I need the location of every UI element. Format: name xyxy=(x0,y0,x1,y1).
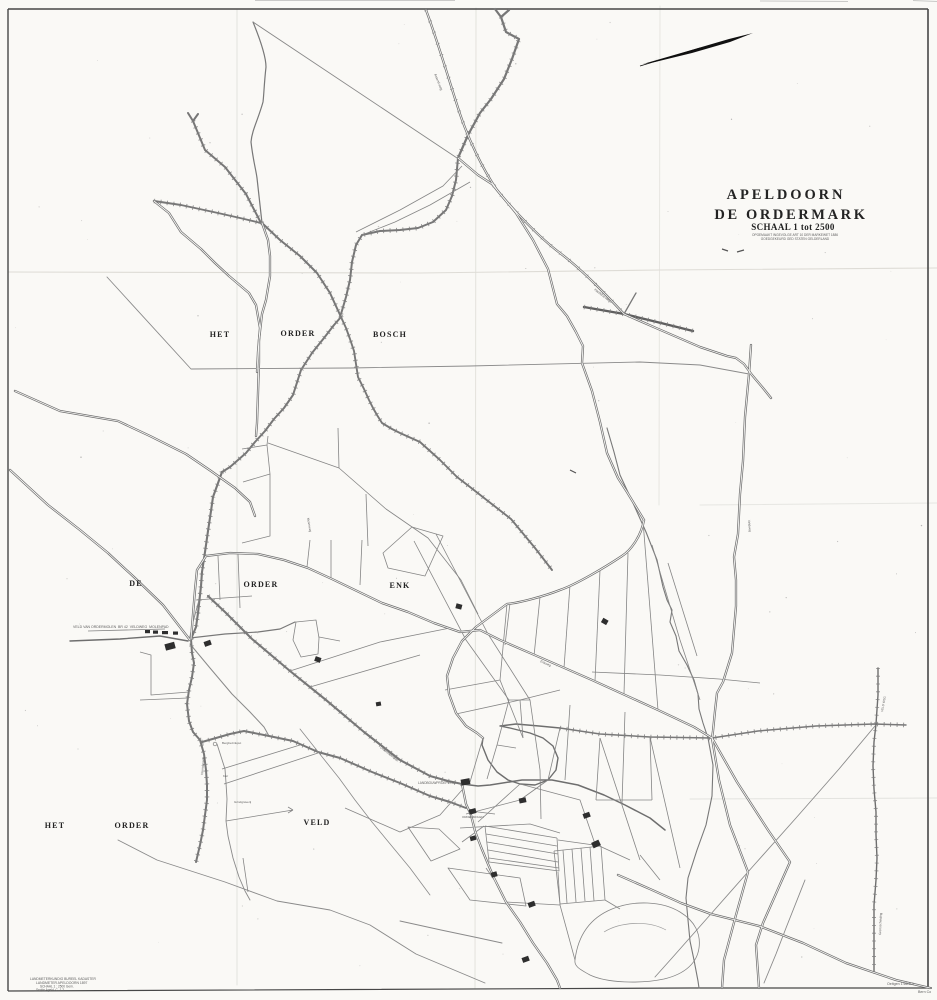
svg-text:Bern Co: Bern Co xyxy=(918,990,931,994)
svg-text:HET: HET xyxy=(210,330,231,339)
svg-text:ORDERMOLEN: ORDERMOLEN xyxy=(462,815,484,819)
svg-text:Oeltgen 1:66-9-1: Oeltgen 1:66-9-1 xyxy=(887,982,914,986)
svg-text:SCHAAL 1 tot 2500: SCHAAL 1 tot 2500 xyxy=(751,222,835,232)
svg-text:ORDER: ORDER xyxy=(115,821,150,830)
svg-text:APELDOORN: APELDOORN xyxy=(727,187,846,203)
svg-text:Grindgraverij: Grindgraverij xyxy=(234,800,252,804)
svg-text:Sectie Apeld. C. 1 2: Sectie Apeld. C. 1 2 xyxy=(36,988,64,992)
svg-text:Kwr: Kwr xyxy=(223,774,228,778)
svg-text:VELD: VELD xyxy=(303,818,330,827)
svg-text:GOEDGEKEURD GED STATEN GELDERL: GOEDGEKEURD GED STATEN GELDERLAND xyxy=(761,237,830,241)
svg-text:HET: HET xyxy=(45,821,66,830)
svg-text:Bergbezinkput: Bergbezinkput xyxy=(222,741,241,745)
svg-text:Grensscheiding: Grensscheiding xyxy=(878,913,883,936)
svg-text:DE ORDERMARK: DE ORDERMARK xyxy=(714,207,867,223)
svg-text:VELD VAN ORDERMOLEN BR 42 VE: VELD VAN ORDERMOLEN BR 42 VELDWEG MOLENP… xyxy=(73,625,169,629)
svg-text:DE: DE xyxy=(129,579,143,588)
svg-text:ORDER: ORDER xyxy=(281,329,316,338)
svg-text:BOSCH: BOSCH xyxy=(373,330,407,339)
svg-text:LANDBOUWPROEFVELD: LANDBOUWPROEFVELD xyxy=(418,781,456,785)
svg-text:ORDER: ORDER xyxy=(244,580,279,589)
svg-text:ENK: ENK xyxy=(390,581,411,590)
